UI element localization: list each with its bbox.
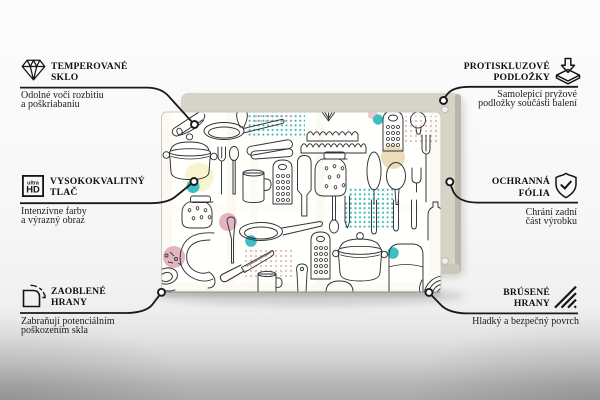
- svg-text:HD: HD: [26, 184, 40, 195]
